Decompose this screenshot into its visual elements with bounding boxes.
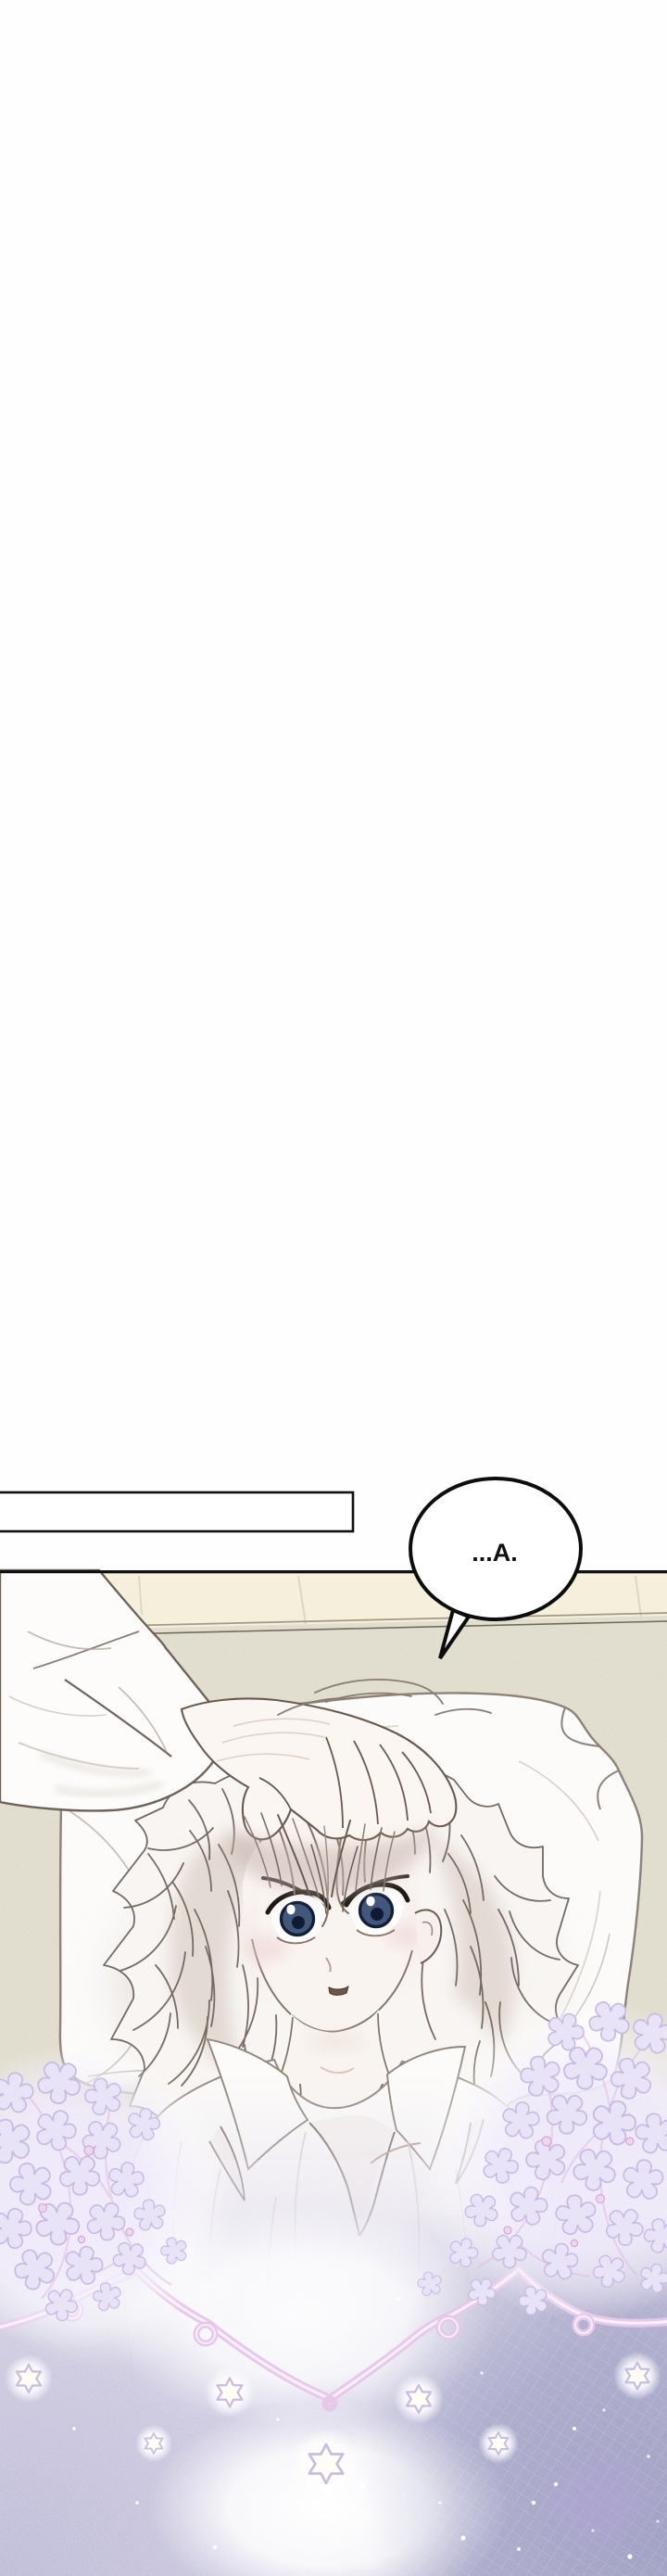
svg-text:...A.: ...A. — [472, 1539, 518, 1567]
